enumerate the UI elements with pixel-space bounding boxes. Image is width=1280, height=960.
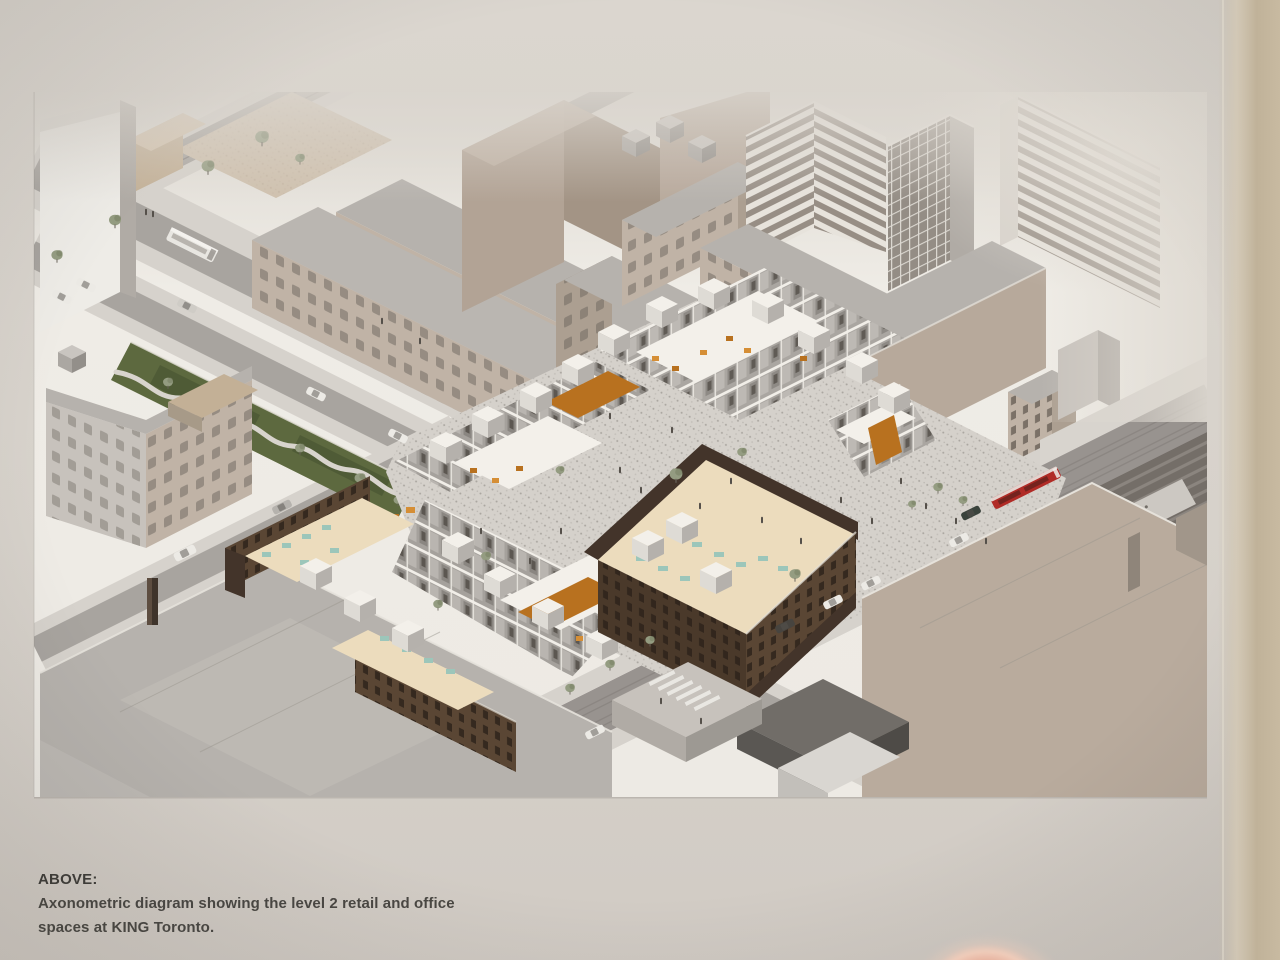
figure-caption: ABOVE: Axonometric diagram showing the l… <box>38 868 455 939</box>
caption-line-1: Axonometric diagram showing the level 2 … <box>38 892 455 916</box>
book-page-photo: ABOVE: Axonometric diagram showing the l… <box>0 0 1280 960</box>
page-edge-highlight <box>1222 0 1224 960</box>
caption-line-2: spaces at KING Toronto. <box>38 916 455 940</box>
photo-vignette <box>0 0 1280 960</box>
page-scene <box>0 0 1280 960</box>
caption-label: ABOVE: <box>38 868 455 892</box>
page-right-edge <box>1218 0 1280 960</box>
